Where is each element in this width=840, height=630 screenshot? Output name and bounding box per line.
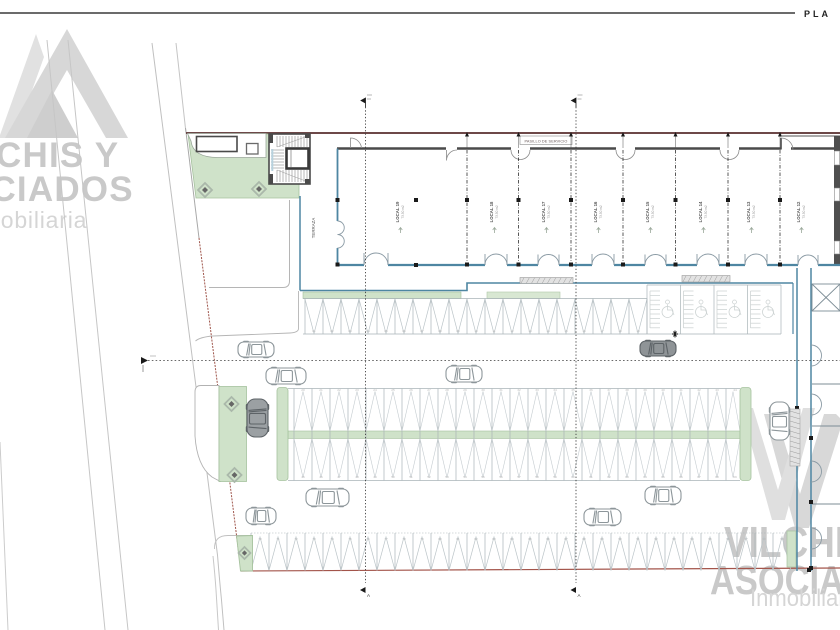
svg-text:82: 82 <box>474 537 478 541</box>
svg-text:79: 79 <box>420 537 424 541</box>
svg-text:26: 26 <box>409 388 413 392</box>
svg-text:75: 75 <box>348 537 352 541</box>
svg-text:51: 51 <box>409 475 413 479</box>
svg-text:29: 29 <box>463 388 467 392</box>
svg-text:32: 32 <box>517 388 521 392</box>
svg-text:76: 76 <box>366 537 370 541</box>
svg-text:77: 77 <box>384 537 388 541</box>
svg-text:73.50 m2: 73.50 m2 <box>401 205 405 219</box>
svg-text:61: 61 <box>589 475 593 479</box>
svg-text:73.50 m2: 73.50 m2 <box>495 205 499 219</box>
svg-text:70: 70 <box>258 537 262 541</box>
svg-text:09: 09 <box>456 329 460 333</box>
svg-text:74: 74 <box>330 537 334 541</box>
svg-text:A: A <box>578 593 581 598</box>
svg-text:08: 08 <box>438 329 442 333</box>
svg-text:83: 83 <box>492 537 496 541</box>
svg-text:54: 54 <box>463 475 467 479</box>
svg-text:01: 01 <box>312 329 316 333</box>
svg-text:98: 98 <box>762 537 766 541</box>
svg-text:23: 23 <box>355 388 359 392</box>
svg-text:57: 57 <box>517 475 521 479</box>
svg-text:92: 92 <box>654 537 658 541</box>
svg-text:41: 41 <box>679 388 683 392</box>
svg-text:ASOCIADOS: ASOCIADOS <box>0 170 134 209</box>
svg-text:58: 58 <box>535 475 539 479</box>
svg-text:18: 18 <box>618 329 622 333</box>
svg-text:21: 21 <box>319 388 323 392</box>
svg-text:45: 45 <box>301 475 305 479</box>
svg-text:37: 37 <box>607 388 611 392</box>
svg-text:39: 39 <box>643 388 647 392</box>
svg-text:34: 34 <box>553 388 557 392</box>
svg-text:03: 03 <box>348 329 352 333</box>
svg-text:13: 13 <box>528 329 532 333</box>
svg-text:78: 78 <box>402 537 406 541</box>
svg-text:84: 84 <box>510 537 514 541</box>
svg-text:20: 20 <box>301 388 305 392</box>
svg-text:06: 06 <box>402 329 406 333</box>
svg-text:53: 53 <box>445 475 449 479</box>
svg-text:33: 33 <box>535 388 539 392</box>
svg-text:64: 64 <box>643 475 647 479</box>
svg-text:81: 81 <box>456 537 460 541</box>
svg-text:55: 55 <box>481 475 485 479</box>
svg-text:73.50 m2: 73.50 m2 <box>704 205 708 219</box>
svg-text:94: 94 <box>690 537 694 541</box>
svg-text:A: A <box>367 593 370 598</box>
svg-text:LOCAL 12: LOCAL 12 <box>796 201 801 222</box>
svg-text:LOCAL 13: LOCAL 13 <box>746 201 751 222</box>
svg-text:16: 16 <box>582 329 586 333</box>
svg-text:95: 95 <box>708 537 712 541</box>
svg-text:36: 36 <box>589 388 593 392</box>
svg-text:PASILLO DE SERVICIO: PASILLO DE SERVICIO <box>525 140 568 144</box>
svg-text:47: 47 <box>337 475 341 479</box>
svg-text:67: 67 <box>697 475 701 479</box>
svg-text:25: 25 <box>391 388 395 392</box>
svg-text:LOCAL 16: LOCAL 16 <box>593 201 598 222</box>
svg-text:30: 30 <box>481 388 485 392</box>
svg-text:62: 62 <box>607 475 611 479</box>
svg-text:31: 31 <box>499 388 503 392</box>
svg-text:27: 27 <box>427 388 431 392</box>
svg-text:11: 11 <box>492 329 495 333</box>
svg-text:56: 56 <box>499 475 503 479</box>
svg-text:88: 88 <box>582 537 586 541</box>
svg-text:73.50 m2: 73.50 m2 <box>752 205 756 219</box>
svg-text:43: 43 <box>715 388 719 392</box>
svg-text:93: 93 <box>672 537 676 541</box>
svg-text:73.50 m2: 73.50 m2 <box>651 205 655 219</box>
svg-text:80: 80 <box>438 537 442 541</box>
svg-text:Inmobiliaria: Inmobiliaria <box>750 584 840 611</box>
svg-text:99: 99 <box>780 537 784 541</box>
svg-text:05: 05 <box>384 329 388 333</box>
svg-text:04: 04 <box>366 329 370 333</box>
svg-text:73: 73 <box>312 537 316 541</box>
svg-text:Inmobiliaria: Inmobiliaria <box>0 207 87 233</box>
svg-text:LOCAL 18: LOCAL 18 <box>489 201 494 222</box>
svg-text:73.50 m2: 73.50 m2 <box>802 205 806 219</box>
svg-text:90: 90 <box>618 537 622 541</box>
svg-text:PLA: PLA <box>804 9 831 19</box>
svg-text:40: 40 <box>661 388 665 392</box>
svg-text:73.50 m2: 73.50 m2 <box>599 205 603 219</box>
svg-text:85: 85 <box>528 537 532 541</box>
svg-text:87: 87 <box>564 537 568 541</box>
svg-text:28: 28 <box>445 388 449 392</box>
svg-text:96: 96 <box>726 537 730 541</box>
svg-text:LOCAL 17: LOCAL 17 <box>541 201 546 222</box>
svg-text:15: 15 <box>564 329 568 333</box>
svg-text:97: 97 <box>744 537 748 541</box>
svg-text:LOCAL 15: LOCAL 15 <box>645 201 650 222</box>
svg-text:59: 59 <box>553 475 557 479</box>
svg-text:44: 44 <box>733 388 737 392</box>
svg-text:48: 48 <box>355 475 359 479</box>
svg-text:71: 71 <box>276 537 280 541</box>
svg-text:10: 10 <box>474 329 478 333</box>
svg-text:68: 68 <box>715 475 719 479</box>
svg-text:72: 72 <box>294 537 298 541</box>
svg-text:17: 17 <box>600 329 604 333</box>
svg-text:60: 60 <box>571 475 575 479</box>
svg-text:38: 38 <box>625 388 629 392</box>
svg-text:86: 86 <box>546 537 550 541</box>
svg-text:02: 02 <box>330 329 334 333</box>
svg-text:89: 89 <box>600 537 604 541</box>
svg-text:LOCAL 14: LOCAL 14 <box>698 201 703 222</box>
svg-text:63: 63 <box>625 475 629 479</box>
svg-text:91: 91 <box>636 537 640 541</box>
svg-text:19: 19 <box>636 329 640 333</box>
svg-text:66: 66 <box>679 475 683 479</box>
svg-text:TERRAZA: TERRAZA <box>311 218 316 239</box>
svg-text:22: 22 <box>337 388 341 392</box>
svg-text:49: 49 <box>373 475 377 479</box>
svg-text:07: 07 <box>420 329 424 333</box>
svg-text:35: 35 <box>571 388 575 392</box>
svg-text:65: 65 <box>661 475 665 479</box>
svg-text:42: 42 <box>697 388 701 392</box>
svg-text:73.50 m2: 73.50 m2 <box>547 205 551 219</box>
svg-text:46: 46 <box>319 475 323 479</box>
svg-text:24: 24 <box>373 388 377 392</box>
svg-text:69: 69 <box>733 475 737 479</box>
svg-text:LOCAL 19: LOCAL 19 <box>395 201 400 222</box>
svg-text:52: 52 <box>427 475 431 479</box>
svg-text:50: 50 <box>391 475 395 479</box>
svg-text:12: 12 <box>510 329 514 333</box>
svg-text:14: 14 <box>546 329 550 333</box>
